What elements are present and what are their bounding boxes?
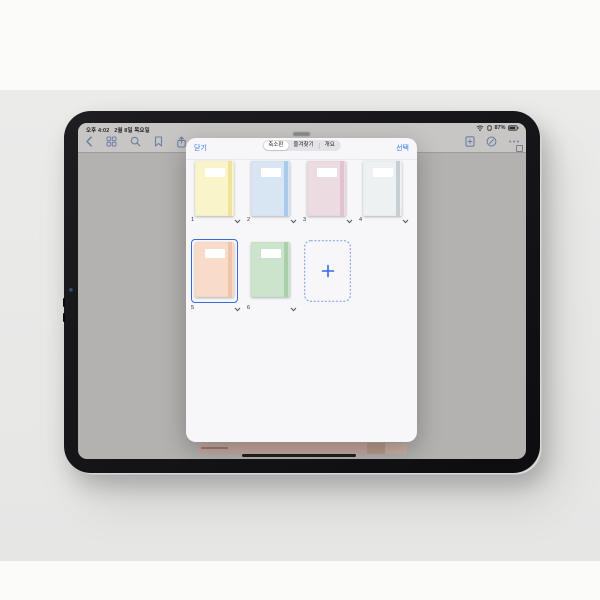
page-number: 6	[247, 305, 250, 311]
page-number: 2	[247, 217, 250, 223]
chevron-down-icon[interactable]	[290, 219, 297, 224]
back-chevron-icon[interactable]	[85, 136, 93, 147]
tab-thumbnails[interactable]: 축소판	[263, 141, 288, 150]
plus-icon	[321, 265, 334, 278]
page-thumbnail-2[interactable]	[251, 161, 290, 216]
document-strip-block	[385, 443, 407, 454]
status-left: 오후 4:02 2월 8일 목요일	[86, 126, 150, 134]
status-date: 2월 8일 목요일	[114, 126, 149, 134]
cover-spine	[228, 161, 232, 216]
thumbnails-grid-icon[interactable]	[106, 136, 117, 147]
cover-spine	[396, 161, 400, 216]
chevron-down-icon[interactable]	[290, 307, 297, 312]
document-strip-block	[367, 443, 385, 454]
wifi-icon	[476, 125, 484, 131]
view-segmented-control: 축소판 즐겨찾기 개요	[262, 140, 341, 151]
pen-mode-icon[interactable]	[486, 136, 497, 147]
tab-outline[interactable]: 개요	[320, 141, 340, 150]
connectivity-icon	[487, 125, 492, 131]
header-hairline	[186, 159, 417, 160]
chevron-down-icon[interactable]	[234, 307, 241, 312]
sheet-header: 닫기 축소판 즐겨찾기 개요 선택	[186, 138, 417, 158]
add-page-icon[interactable]	[465, 136, 475, 147]
thumbnails-sheet: 닫기 축소판 즐겨찾기 개요 선택	[186, 138, 417, 442]
page-thumbnail-5[interactable]	[195, 242, 234, 297]
document-strip-text	[201, 447, 228, 450]
background-card-edge	[293, 132, 310, 136]
front-camera	[69, 288, 73, 292]
cover-title-label	[205, 168, 225, 177]
status-right: 87%	[476, 125, 519, 131]
add-page-tile[interactable]	[304, 240, 351, 302]
status-time: 오후 4:02	[86, 126, 109, 134]
chevron-down-icon[interactable]	[234, 219, 241, 224]
page-number: 3	[303, 217, 306, 223]
cover-spine	[228, 242, 232, 297]
cover-spine	[284, 161, 288, 216]
chevron-down-icon[interactable]	[346, 219, 353, 224]
home-indicator[interactable]	[242, 454, 356, 457]
side-button	[63, 313, 65, 322]
background-document-strip	[198, 443, 407, 454]
cover-title-label	[261, 168, 281, 177]
cover-spine	[284, 242, 288, 297]
battery-percent: 87%	[494, 125, 505, 131]
cover-title-label	[205, 249, 225, 258]
cover-spine	[340, 161, 344, 216]
cover-title-label	[261, 249, 281, 258]
close-button[interactable]: 닫기	[194, 143, 207, 153]
page-thumbnail-4[interactable]	[363, 161, 402, 216]
page-number: 5	[191, 305, 194, 311]
chevron-down-icon[interactable]	[402, 219, 409, 224]
page-number: 1	[191, 217, 194, 223]
side-button	[63, 298, 65, 307]
ipad-device: 오후 4:02 2월 8일 목요일 87%	[64, 111, 540, 473]
ipad-screen: 오후 4:02 2월 8일 목요일 87%	[78, 123, 526, 459]
tab-favorites[interactable]: 즐겨찾기	[288, 141, 318, 150]
toolbar-right	[465, 136, 520, 147]
search-icon[interactable]	[130, 136, 141, 147]
photo-stage: 오후 4:02 2월 8일 목요일 87%	[0, 0, 600, 600]
page-thumbnail-3[interactable]	[307, 161, 346, 216]
page-layout-mini-icon	[516, 145, 523, 152]
battery-icon	[508, 125, 519, 131]
page-number: 4	[359, 217, 362, 223]
toolbar-left	[85, 136, 187, 148]
select-button[interactable]: 선택	[396, 143, 409, 153]
page-thumbnail-6[interactable]	[251, 242, 290, 297]
page-thumbnail-1[interactable]	[195, 161, 234, 216]
cover-title-label	[317, 168, 337, 177]
cover-title-label	[373, 168, 393, 177]
bookmark-icon[interactable]	[154, 136, 163, 147]
